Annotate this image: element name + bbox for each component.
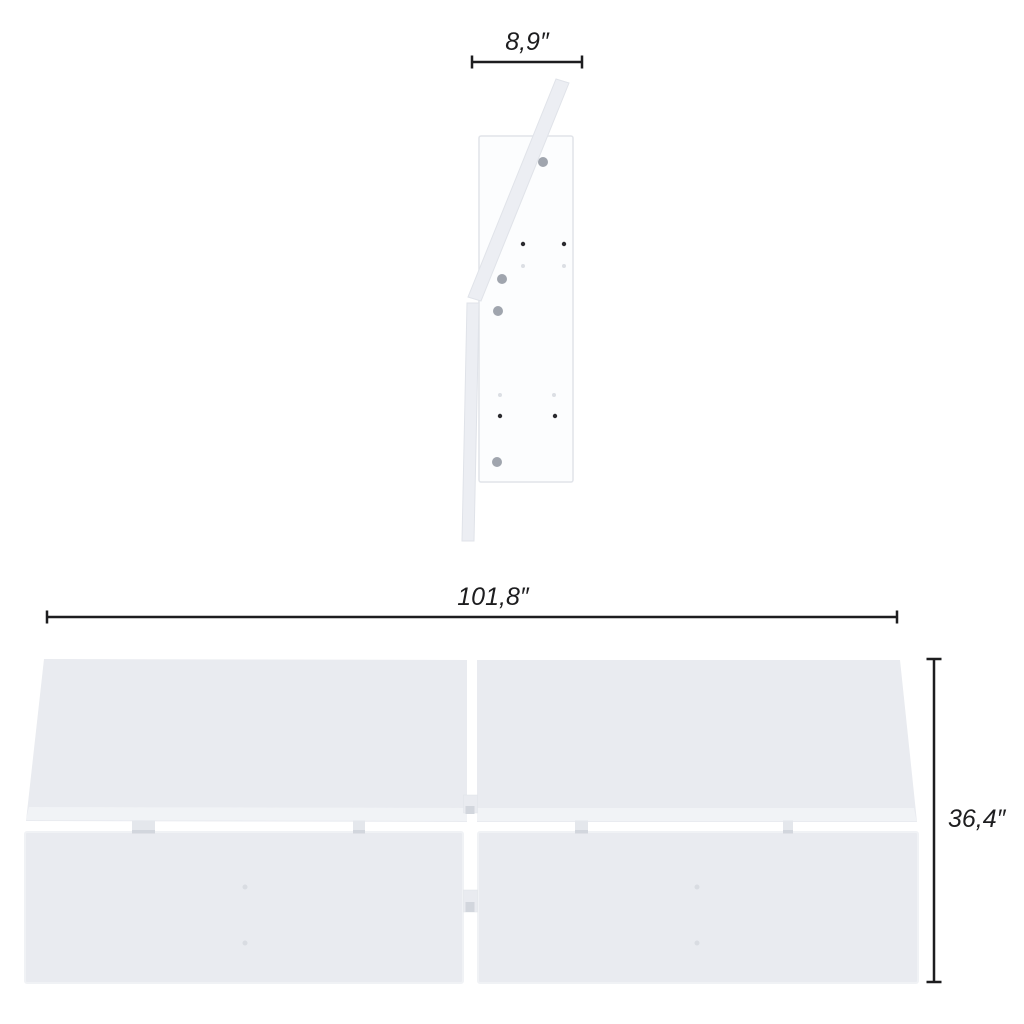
top-panel-right [477, 660, 917, 822]
pin-hole [553, 414, 557, 418]
center-connector-bottom-inner [466, 902, 475, 912]
dimension-width-label: 101,8″ [423, 584, 563, 610]
bottom-panel-left [25, 832, 463, 983]
panel-mark [243, 941, 248, 946]
dimension-height-line [927, 659, 942, 982]
panel-mark [695, 941, 700, 946]
dimension-width-line [47, 611, 897, 624]
faint-hole [562, 264, 566, 268]
pin-hole [498, 414, 502, 418]
connector-tab-shadow [783, 830, 793, 834]
top-panel-edge-right [477, 808, 917, 821]
side-leg [462, 303, 479, 541]
diagram-canvas [0, 0, 1024, 1024]
panel-mark [695, 885, 700, 890]
pin-hole [562, 242, 566, 246]
faint-hole [521, 264, 525, 268]
screw-hole [492, 457, 502, 467]
panel-mark [243, 885, 248, 890]
connector-tab-shadow [575, 830, 588, 834]
screw-hole [538, 157, 548, 167]
dimension-height-label: 36,4″ [948, 806, 1024, 832]
center-connector-top-inner [466, 806, 475, 814]
screw-hole [497, 274, 507, 284]
connector-tab-shadow [353, 830, 365, 834]
faint-hole [498, 393, 502, 397]
connector-tab-shadow [132, 830, 155, 834]
pin-hole [521, 242, 525, 246]
dimension-diagram-page: 8,9″ 101,8″ 36,4″ [0, 0, 1024, 1024]
bottom-panel-right [478, 832, 918, 983]
front-view [25, 659, 918, 983]
side-view [462, 79, 573, 541]
screw-hole [493, 306, 503, 316]
center-connector-tabs [464, 795, 478, 912]
dimension-depth-label: 8,9″ [457, 29, 597, 55]
top-panel-edge-left [26, 807, 467, 821]
faint-hole [552, 393, 556, 397]
dimension-depth-line [472, 56, 582, 69]
top-panel-left [26, 659, 467, 822]
